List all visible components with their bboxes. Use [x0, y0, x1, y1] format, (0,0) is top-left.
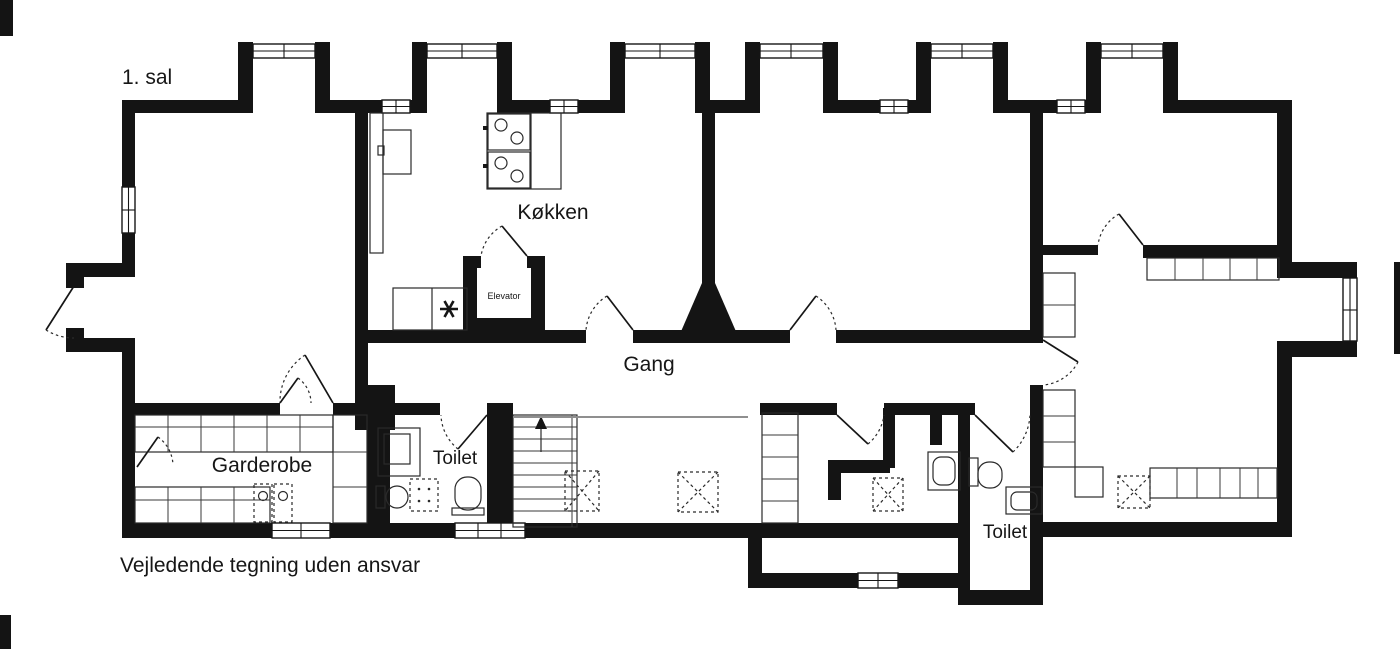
- kitchen-counter: [370, 113, 383, 253]
- room-label-elevator: Elevator: [487, 291, 520, 301]
- floor-label: 1. sal: [122, 66, 172, 89]
- cabinet-row-top: [1147, 258, 1279, 280]
- door-swing-arc-icon: [790, 296, 836, 330]
- window-icon: [455, 523, 525, 538]
- door-swing-arc-icon: [481, 226, 527, 256]
- window-icon: [931, 44, 993, 58]
- locker-row-top: [135, 415, 333, 452]
- skylight-dashed-icon: [873, 478, 903, 511]
- window-icon: [1343, 278, 1357, 341]
- skylights: [565, 471, 1150, 512]
- room-label-toilet-right: Toilet: [983, 522, 1028, 543]
- toilet-bowl-icon: [452, 477, 484, 515]
- window-icon: [272, 523, 330, 538]
- room-label-kitchen: Køkken: [517, 201, 588, 224]
- stove-icon: [483, 113, 561, 189]
- fridge-icon: [378, 130, 411, 174]
- windows: [122, 44, 1357, 588]
- cabinet-row-bottom: [1150, 468, 1277, 498]
- window-icon: [382, 100, 410, 113]
- window-icon: [122, 187, 135, 233]
- right-room-cabinets: [1043, 258, 1279, 498]
- window-icon: [1057, 100, 1085, 113]
- skylight-dashed-icon: [678, 472, 718, 512]
- toilet-left-fixtures: [376, 428, 484, 515]
- door-swing-arc-icon: [1098, 214, 1143, 245]
- shelf-column: [762, 413, 798, 523]
- chimney-mass: [676, 283, 741, 343]
- door-swing-arc-icon: [441, 415, 487, 449]
- shower-icon: [410, 479, 438, 511]
- window-icon: [880, 100, 908, 113]
- window-icon: [858, 573, 898, 588]
- window-icon: [427, 44, 497, 58]
- locker-column-right: [333, 415, 367, 523]
- skylight-dashed-icon: [565, 471, 599, 511]
- door-swing-arc-icon: [1043, 340, 1078, 385]
- stairs-up-arrow-icon: [535, 416, 547, 452]
- toilet-bowl-icon: [969, 458, 1002, 488]
- room-label-wardrobe: Garderobe: [212, 454, 312, 477]
- counter-with-drain: [393, 288, 467, 330]
- disclaimer-text: Vejledende tegning uden ansvar: [120, 554, 420, 577]
- window-icon: [253, 44, 315, 58]
- door-swing-arc-icon: [280, 355, 333, 403]
- door-swing-arc-icon: [280, 378, 311, 403]
- window-icon: [625, 44, 695, 58]
- locker-row-bottom: [135, 487, 270, 523]
- floorplan-drawing: 1. sal Køkken Gang Garderobe Toilet Toil…: [0, 0, 1400, 649]
- door-swing-arc-icon: [586, 296, 633, 330]
- room-label-toilet-left: Toilet: [433, 448, 478, 469]
- door-swing-arc-icon: [975, 415, 1030, 452]
- cabinet-column-left: [1043, 273, 1103, 497]
- window-icon: [760, 44, 823, 58]
- skylight-dashed-icon: [1118, 476, 1150, 508]
- window-icon: [550, 100, 578, 113]
- sink-icon: [254, 484, 292, 522]
- floorplan-canvas: 1. sal Køkken Gang Garderobe Toilet Toil…: [0, 0, 1400, 649]
- window-icon: [1101, 44, 1163, 58]
- sink-icon: [928, 452, 960, 490]
- room-label-hallway: Gang: [623, 353, 674, 376]
- door-swing-arc-icon: [837, 415, 884, 444]
- asterisk-drain-icon: [440, 301, 458, 317]
